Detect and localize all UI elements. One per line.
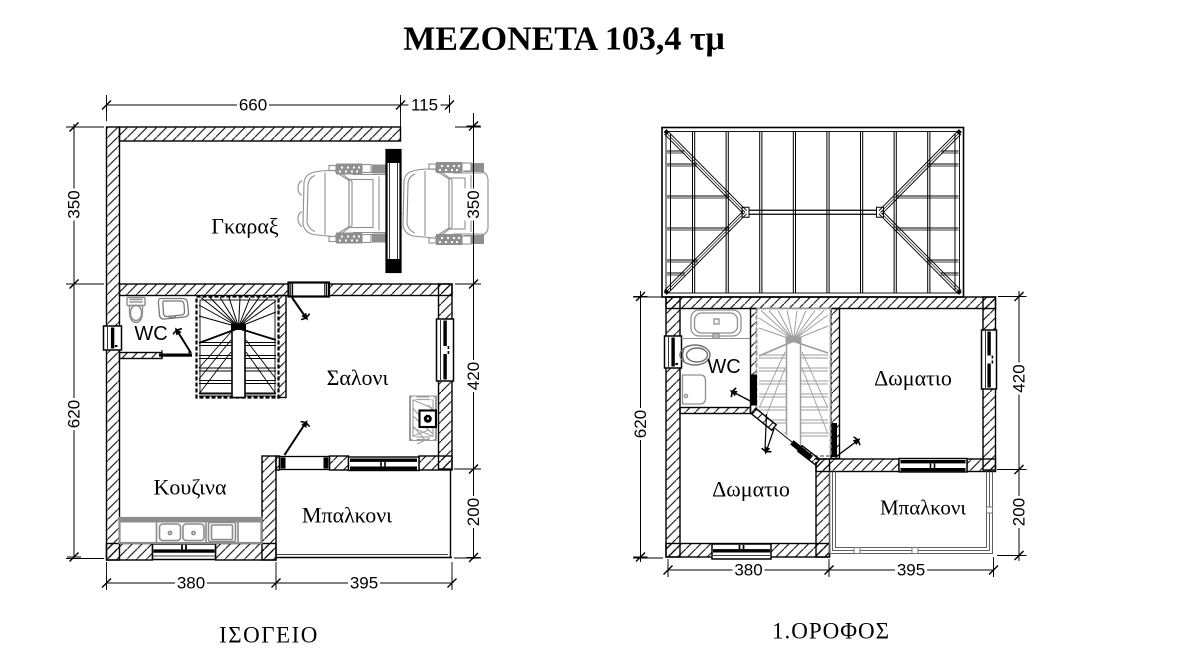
svg-text:1.ΟΡΟΦΟΣ: 1.ΟΡΟΦΟΣ — [772, 619, 890, 644]
svg-text:WC: WC — [707, 356, 740, 378]
svg-text:200: 200 — [1010, 498, 1029, 526]
svg-text:Δωματιο: Δωματιο — [712, 477, 790, 502]
svg-text:ΜΕΖΟΝΕΤΑ 103,4 τμ: ΜΕΖΟΝΕΤΑ 103,4 τμ — [403, 21, 725, 58]
svg-text:Μπαλκονι: Μπαλκονι — [880, 496, 966, 520]
svg-text:350: 350 — [464, 190, 483, 218]
svg-text:350: 350 — [65, 190, 84, 218]
svg-text:Σαλονι: Σαλονι — [327, 365, 389, 390]
svg-text:395: 395 — [350, 574, 378, 593]
svg-text:200: 200 — [464, 498, 483, 526]
svg-text:ΙΣΟΓΕΙΟ: ΙΣΟΓΕΙΟ — [219, 623, 319, 648]
svg-text:Γκαραξ: Γκαραξ — [211, 214, 279, 239]
svg-text:380: 380 — [177, 574, 205, 593]
svg-text:620: 620 — [65, 400, 84, 428]
svg-text:620: 620 — [631, 410, 650, 438]
svg-text:Μπαλκονι: Μπαλκονι — [302, 503, 392, 528]
svg-text:420: 420 — [464, 362, 483, 390]
svg-text:395: 395 — [897, 561, 925, 580]
svg-text:Δωματιο: Δωματιο — [874, 366, 952, 391]
svg-text:WC: WC — [134, 323, 167, 345]
svg-text:660: 660 — [239, 96, 267, 115]
svg-text:380: 380 — [734, 561, 762, 580]
svg-text:Κουζινα: Κουζινα — [154, 475, 227, 500]
svg-text:420: 420 — [1010, 364, 1029, 392]
svg-text:115: 115 — [411, 96, 438, 115]
